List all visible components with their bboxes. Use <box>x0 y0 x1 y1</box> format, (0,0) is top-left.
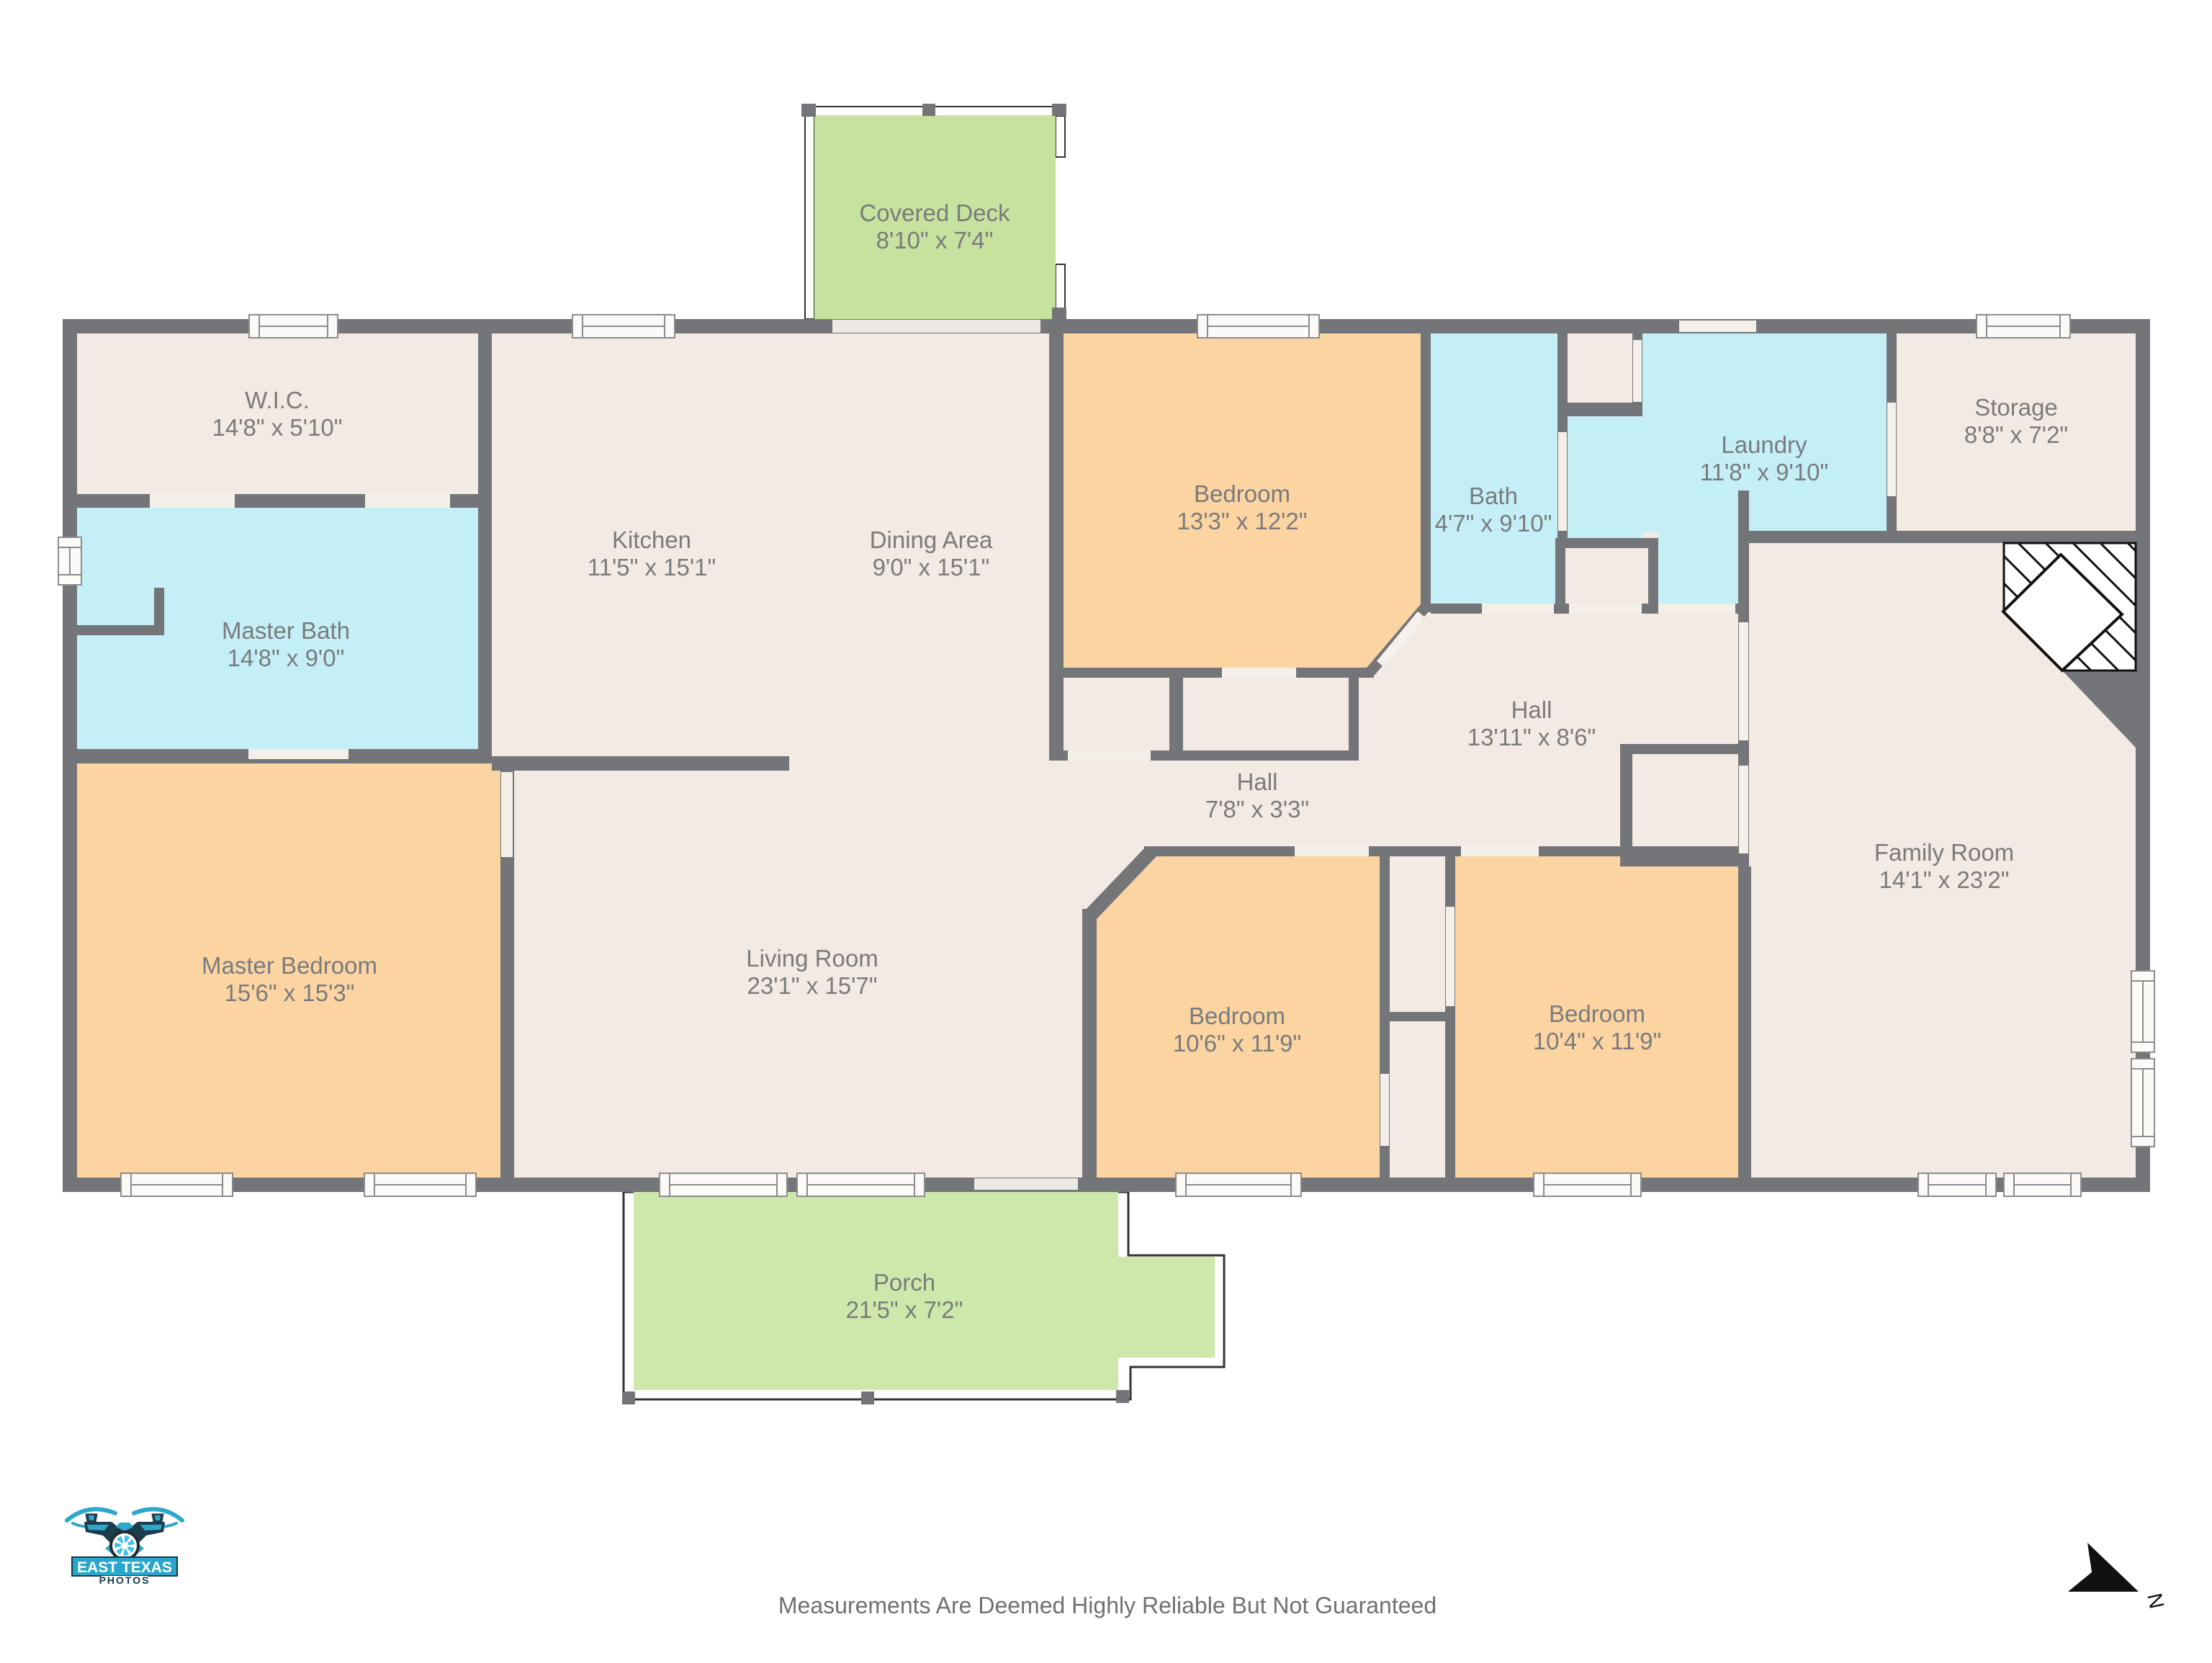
svg-text:Bath: Bath <box>1469 483 1518 509</box>
svg-text:Family Room: Family Room <box>1874 839 2014 866</box>
svg-text:Storage: Storage <box>1974 394 2058 421</box>
svg-text:11'5" x 15'1": 11'5" x 15'1" <box>588 554 716 581</box>
svg-text:Living Room: Living Room <box>746 945 878 972</box>
svg-text:21'5" x 7'2": 21'5" x 7'2" <box>846 1296 963 1323</box>
svg-text:Master Bath: Master Bath <box>222 617 350 644</box>
svg-text:11'8" x 9'10": 11'8" x 9'10" <box>1700 459 1829 485</box>
svg-text:4'7" x 9'10": 4'7" x 9'10" <box>1435 510 1552 537</box>
svg-text:Dining Area: Dining Area <box>870 526 993 553</box>
svg-text:8'10" x 7'4": 8'10" x 7'4" <box>876 227 994 254</box>
svg-text:15'6" x 15'3": 15'6" x 15'3" <box>225 980 355 1006</box>
svg-text:7'8" x 3'3": 7'8" x 3'3" <box>1205 796 1309 822</box>
svg-text:10'6" x 11'9": 10'6" x 11'9" <box>1173 1030 1302 1057</box>
svg-text:14'8" x 9'0": 14'8" x 9'0" <box>228 645 345 671</box>
svg-text:Bedroom: Bedroom <box>1189 1003 1285 1029</box>
svg-text:Hall: Hall <box>1237 768 1278 795</box>
svg-text:Bedroom: Bedroom <box>1549 1000 1645 1027</box>
svg-text:Bedroom: Bedroom <box>1194 480 1290 507</box>
svg-text:Hall: Hall <box>1511 696 1552 723</box>
svg-text:Kitchen: Kitchen <box>612 526 691 553</box>
svg-text:Covered Deck: Covered Deck <box>859 200 1010 226</box>
svg-text:Porch: Porch <box>873 1269 935 1296</box>
svg-text:9'0" x 15'1": 9'0" x 15'1" <box>873 554 990 581</box>
svg-text:EAST TEXAS: EAST TEXAS <box>77 1559 172 1576</box>
svg-text:13'3" x 12'2": 13'3" x 12'2" <box>1177 508 1308 534</box>
svg-text:Laundry: Laundry <box>1721 431 1807 458</box>
svg-text:8'8" x 7'2": 8'8" x 7'2" <box>1964 421 2068 448</box>
svg-text:Measurements Are Deemed Highly: Measurements Are Deemed Highly Reliable … <box>778 1592 1437 1618</box>
svg-text:13'11" x 8'6": 13'11" x 8'6" <box>1467 724 1596 750</box>
svg-text:10'4" x 11'9": 10'4" x 11'9" <box>1533 1028 1662 1054</box>
svg-text:Master Bedroom: Master Bedroom <box>202 952 377 979</box>
svg-text:14'1" x 23'2": 14'1" x 23'2" <box>1879 866 2010 893</box>
svg-text:W.I.C.: W.I.C. <box>245 387 310 413</box>
svg-text:23'1" x 15'7": 23'1" x 15'7" <box>747 972 878 999</box>
svg-text:14'8" x 5'10": 14'8" x 5'10" <box>212 414 343 441</box>
svg-text:PHOTOS: PHOTOS <box>99 1574 150 1586</box>
